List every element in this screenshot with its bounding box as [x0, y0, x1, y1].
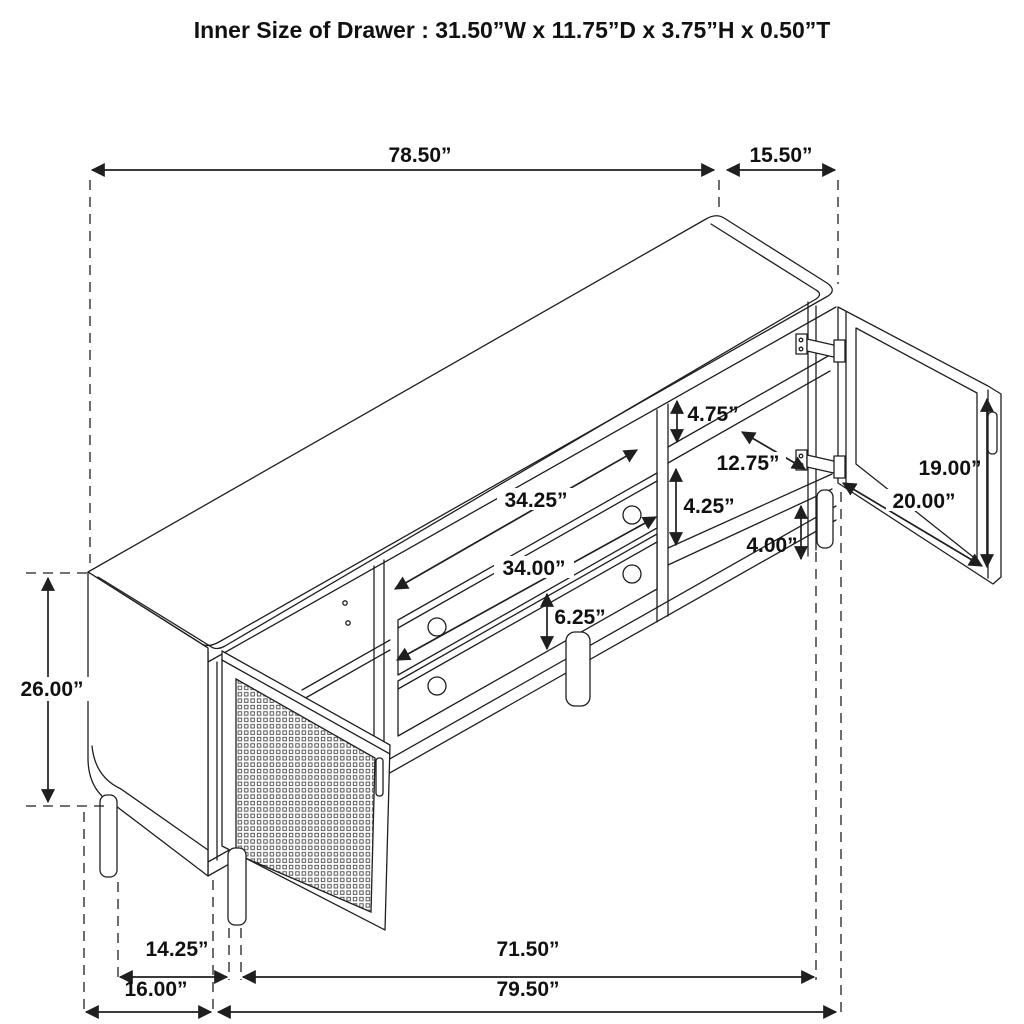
dim-label-door-width: 20.00”: [892, 490, 955, 513]
leg-under-door: [228, 848, 246, 925]
dim-overall-length: 79.50”: [218, 978, 836, 1012]
dimension-diagram: Inner Size of Drawer : 31.50”W x 11.75”D…: [0, 0, 1024, 1024]
dim-label-door-height: 19.00”: [918, 457, 981, 480]
leg-front-left: [100, 795, 117, 877]
dim-label-drawer-front-height: 6.25”: [554, 606, 605, 629]
drawer-knob: [428, 677, 446, 695]
leg-front-right: [817, 490, 833, 548]
right-door: [838, 307, 1001, 584]
dim-label-base-height: 4.00”: [746, 534, 797, 557]
right-door-handle: [988, 412, 997, 454]
dim-top-depth: 15.50”: [727, 144, 835, 170]
dim-label-leg-span: 71.50”: [496, 938, 559, 961]
dim-label-opening-width: 34.25”: [504, 489, 567, 512]
dim-label-lower-shelf-gap: 4.25”: [683, 495, 734, 518]
dim-leg-span: 71.50”: [243, 938, 814, 977]
dim-label-leg-inset: 14.25”: [145, 938, 208, 961]
dim-label-top-depth: 15.50”: [749, 144, 812, 167]
dim-label-shelf-depth: 12.75”: [716, 452, 779, 475]
dim-label-overall-length: 79.50”: [496, 978, 559, 1001]
dim-label-drawer-width: 34.00”: [502, 557, 565, 580]
drawer-knob: [623, 565, 641, 583]
dim-label-top-length: 78.50”: [388, 144, 451, 167]
leg-middle: [566, 632, 590, 706]
page-title: Inner Size of Drawer : 31.50”W x 11.75”D…: [194, 17, 831, 43]
dim-side-depth: 16.00”: [86, 978, 211, 1012]
drawer-knob: [428, 618, 446, 636]
dim-label-side-depth: 16.00”: [124, 978, 187, 1001]
dim-top-length: 78.50”: [92, 144, 714, 170]
sideboard-drawing-svg: Inner Size of Drawer : 31.50”W x 11.75”D…: [0, 0, 1024, 1024]
dim-cabinet-height: 26.00”: [14, 578, 92, 802]
dim-label-upper-shelf-gap: 4.75”: [687, 403, 738, 426]
dim-leg-inset: 14.25”: [120, 938, 227, 977]
cane-door-handle: [376, 758, 383, 796]
drawer-knob: [623, 506, 641, 524]
dim-label-cabinet-height: 26.00”: [20, 678, 83, 701]
